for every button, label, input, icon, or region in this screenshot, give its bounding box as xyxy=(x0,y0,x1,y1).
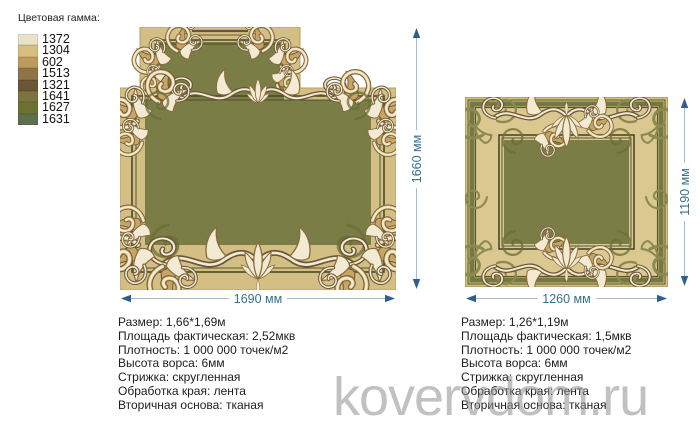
height-dimension-label: 1190 мм xyxy=(678,163,692,221)
left-carpet-width-dimension: 1690 мм xyxy=(120,291,396,306)
width-dimension-label: 1690 мм xyxy=(229,292,287,306)
arrow-up-icon xyxy=(681,98,688,108)
color-swatch xyxy=(18,68,38,79)
right-carpet-height-dimension: 1190 мм xyxy=(677,97,692,287)
carpet-spec-sheet: Цветовая гамма: 1372 1304 602 1513 1321 … xyxy=(0,0,700,429)
width-dimension-label: 1260 мм xyxy=(537,292,595,306)
spec-line: Размер: 1,26*1,19м xyxy=(461,316,632,330)
site-watermark: kovervdom.ru xyxy=(333,366,648,428)
arrow-right-icon xyxy=(385,295,395,302)
arrow-up-icon xyxy=(413,28,420,38)
spec-line: Площадь фактическая: 2,52мкв xyxy=(118,330,295,344)
arrow-left-icon xyxy=(121,295,131,302)
arrow-right-icon xyxy=(657,295,667,302)
palette-row: 1631 xyxy=(18,114,100,125)
right-carpet-preview xyxy=(465,97,668,287)
height-dimension-label: 1660 мм xyxy=(410,129,424,187)
left-carpet-preview xyxy=(120,27,396,290)
right-carpet-width-dimension: 1260 мм xyxy=(465,291,668,306)
right-carpet-field xyxy=(504,140,629,244)
spec-line: Плотность: 1 000 000 точек/м2 xyxy=(461,344,632,358)
spec-line: Обработка края: лента xyxy=(118,385,295,399)
color-swatch xyxy=(18,114,38,125)
color-swatch xyxy=(18,45,38,56)
color-swatch xyxy=(18,91,38,102)
left-carpet-specs: Размер: 1,66*1,69м Площадь фактическая: … xyxy=(118,316,295,413)
arrow-down-icon xyxy=(413,279,420,289)
spec-line: Высота ворса: 6мм xyxy=(118,357,295,371)
arrow-left-icon xyxy=(466,295,476,302)
color-swatch xyxy=(18,80,38,91)
palette-title: Цветовая гамма: xyxy=(18,12,100,24)
spec-line: Размер: 1,66*1,69м xyxy=(118,316,295,330)
left-carpet-height-dimension: 1660 мм xyxy=(409,27,424,290)
spec-line: Стрижка: скругленная xyxy=(118,371,295,385)
color-swatch xyxy=(18,34,38,45)
spec-line: Площадь фактическая: 1,5мкв xyxy=(461,330,632,344)
color-swatch xyxy=(18,102,38,113)
spec-line: Вторичная основа: тканая xyxy=(118,399,295,413)
spec-line: Плотность: 1 000 000 точек/м2 xyxy=(118,344,295,358)
arrow-down-icon xyxy=(681,276,688,286)
left-carpet-field xyxy=(145,100,371,245)
color-swatch xyxy=(18,57,38,68)
color-palette: Цветовая гамма: 1372 1304 602 1513 1321 … xyxy=(18,12,100,125)
color-code: 1631 xyxy=(42,114,70,125)
